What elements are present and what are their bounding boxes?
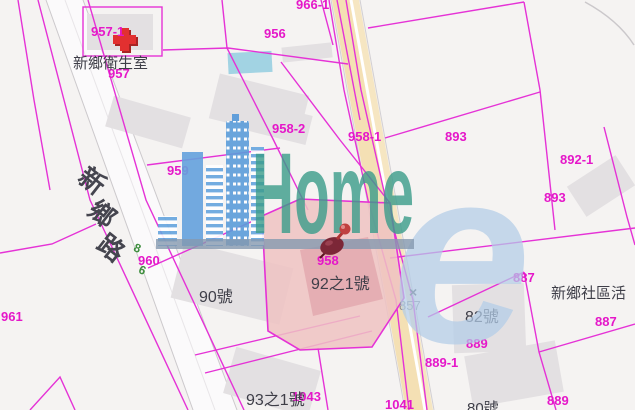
address-label: 新鄉衛生室 bbox=[73, 55, 148, 72]
parcel-label: 893 bbox=[544, 190, 566, 205]
map-canvas[interactable]: 957-1 957 956 966-1 958-2 958-1 893 892-… bbox=[0, 0, 635, 410]
address-label: 90號 bbox=[199, 288, 233, 306]
parcel-label: 892-1 bbox=[560, 152, 593, 167]
parcel-label: 956 bbox=[264, 26, 286, 41]
address-label: 80號 bbox=[467, 400, 499, 410]
parcel-label: 1041 bbox=[385, 397, 414, 410]
parcel-label: 889 bbox=[547, 393, 569, 408]
address-label: 93之1號 bbox=[246, 391, 305, 409]
parcel-label: 961 bbox=[1, 309, 23, 324]
cadastral-map-view[interactable]: 957-1 957 956 966-1 958-2 958-1 893 892-… bbox=[0, 0, 635, 410]
address-label: 92之1號 bbox=[311, 275, 370, 293]
address-label: 新鄉社區活 bbox=[551, 285, 626, 302]
parcel-label: 887 bbox=[595, 314, 617, 329]
parcel-label: 957-1 bbox=[91, 24, 124, 39]
parcel-label: 966-1 bbox=[296, 0, 329, 12]
